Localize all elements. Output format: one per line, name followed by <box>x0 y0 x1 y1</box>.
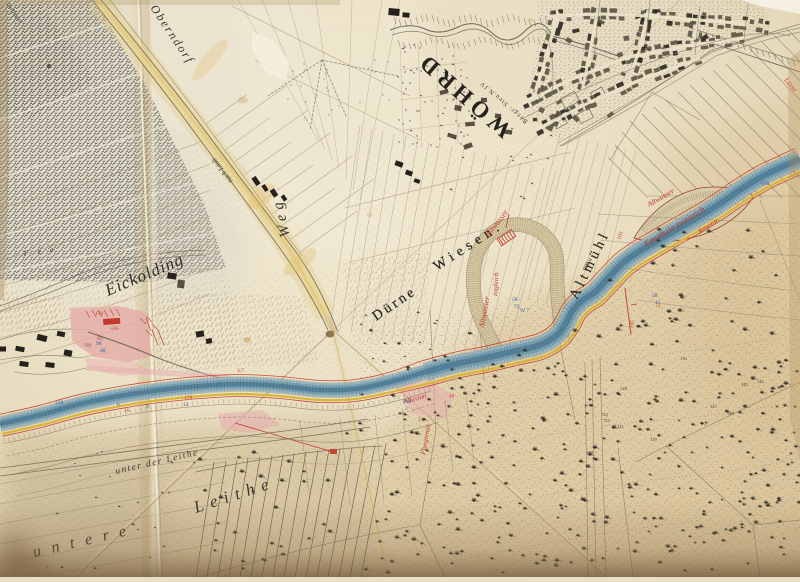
svg-text:12: 12 <box>183 402 189 408</box>
svg-text:116: 116 <box>680 356 687 361</box>
svg-text:142: 142 <box>757 379 764 384</box>
svg-text:148: 148 <box>727 411 735 416</box>
svg-text:58: 58 <box>652 293 658 299</box>
svg-text:723: 723 <box>601 412 609 417</box>
svg-text:918: 918 <box>403 399 412 405</box>
svg-text:6: 6 <box>117 402 120 408</box>
svg-text:150: 150 <box>586 450 594 455</box>
svg-text:178: 178 <box>184 395 193 401</box>
svg-text:281: 281 <box>628 320 634 329</box>
svg-text:96: 96 <box>96 341 102 347</box>
svg-text:119: 119 <box>650 437 657 442</box>
svg-text:24: 24 <box>449 393 455 399</box>
svg-text:4.7: 4.7 <box>237 368 244 374</box>
svg-text:318: 318 <box>55 400 64 406</box>
svg-text:~05: ~05 <box>110 326 119 332</box>
svg-text:2: 2 <box>405 406 408 412</box>
svg-text:9: 9 <box>146 404 149 410</box>
svg-text:147: 147 <box>710 404 718 409</box>
svg-text:121: 121 <box>617 424 624 429</box>
svg-text:16: 16 <box>124 408 130 414</box>
svg-text:145.: 145. <box>741 382 749 387</box>
svg-text:W 7: W 7 <box>520 308 529 314</box>
svg-text:128: 128 <box>620 386 628 391</box>
svg-text:58: 58 <box>512 297 518 303</box>
svg-text:2: 2 <box>58 407 61 413</box>
svg-text:159: 159 <box>95 311 104 317</box>
svg-text:48: 48 <box>100 348 106 354</box>
svg-text:725: 725 <box>603 418 611 423</box>
svg-text:31: 31 <box>418 417 424 423</box>
svg-text:72: 72 <box>514 304 520 310</box>
svg-text:11: 11 <box>655 300 661 306</box>
svg-text:618: 618 <box>761 181 770 187</box>
